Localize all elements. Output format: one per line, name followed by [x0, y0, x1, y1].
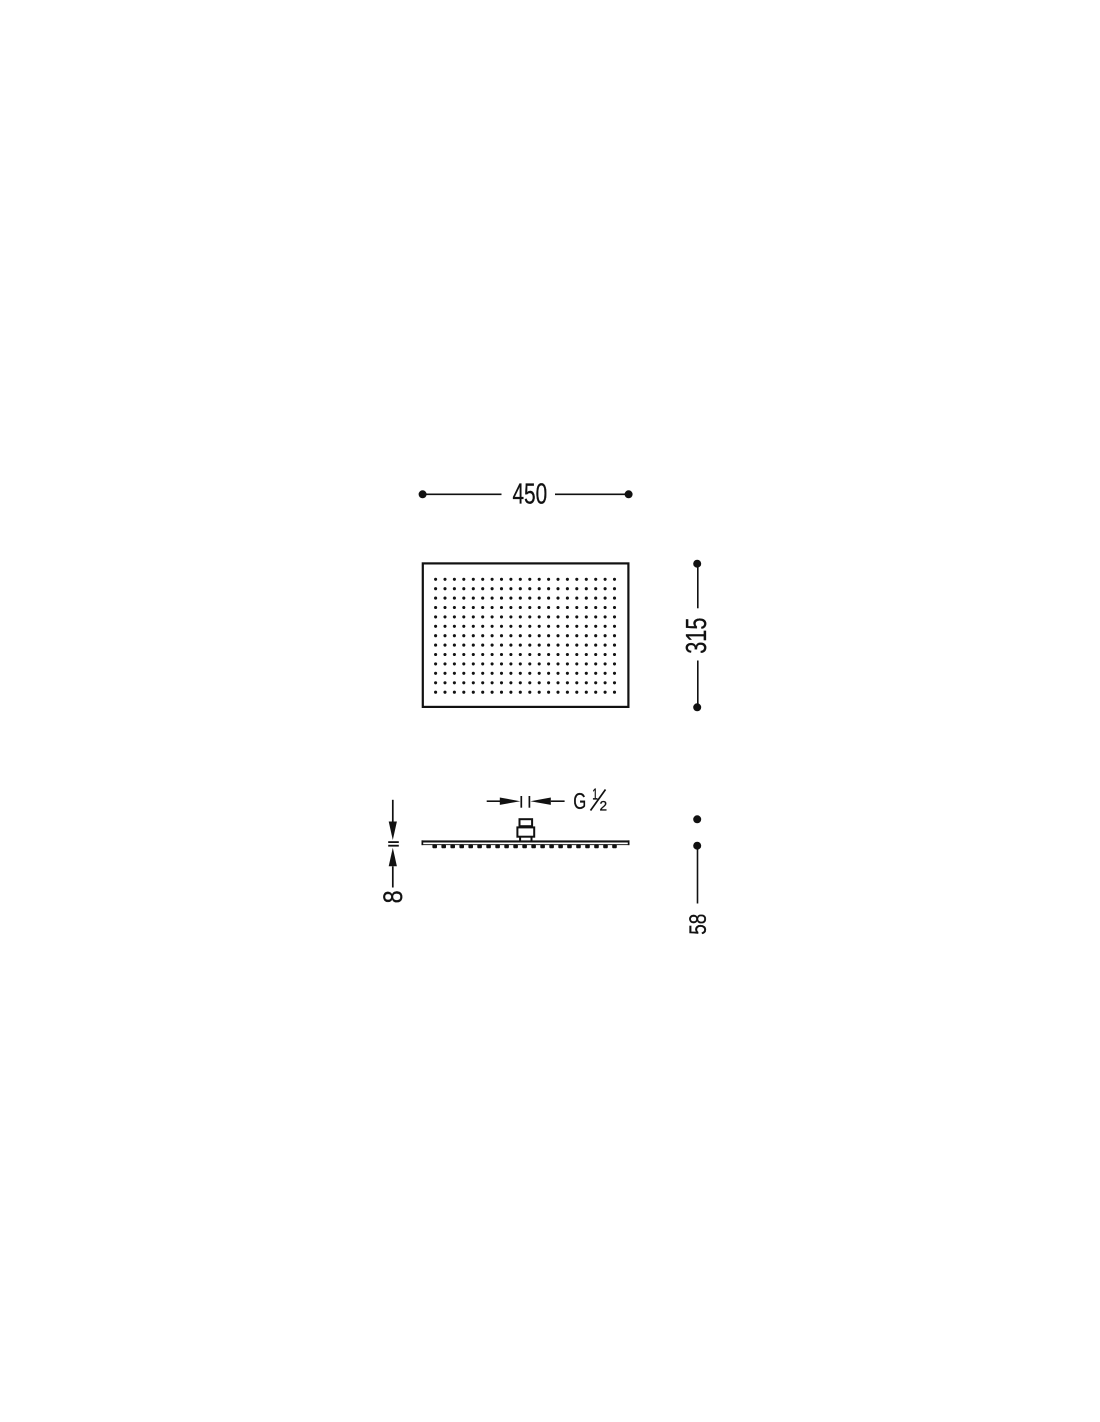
svg-text:2: 2 — [600, 799, 608, 814]
svg-text:8: 8 — [378, 890, 408, 903]
svg-text:G: G — [573, 788, 586, 814]
svg-text:58: 58 — [685, 914, 712, 935]
svg-text:450: 450 — [512, 479, 547, 511]
svg-text:315: 315 — [681, 618, 713, 654]
